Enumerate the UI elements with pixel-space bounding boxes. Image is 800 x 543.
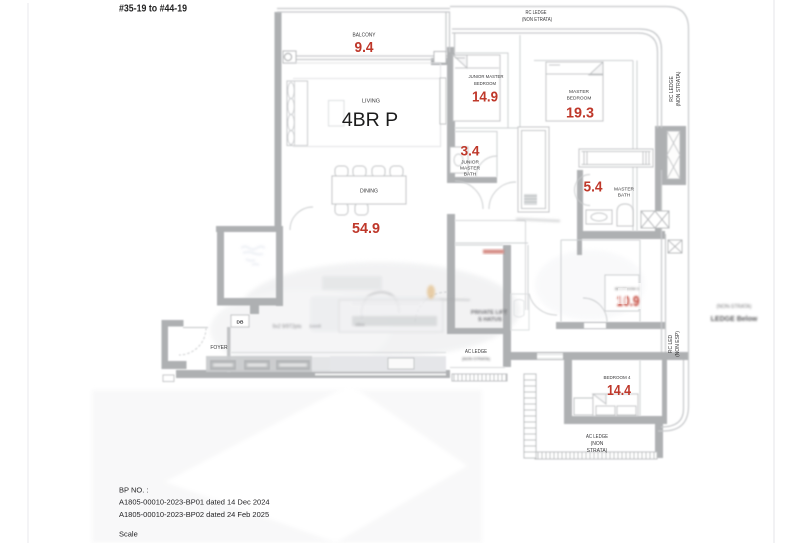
svg-text:STRATA): STRATA) bbox=[587, 448, 608, 454]
svg-text:14.4: 14.4 bbox=[607, 383, 631, 399]
svg-text:54.9: 54.9 bbox=[352, 220, 380, 237]
svg-text:BATH: BATH bbox=[464, 172, 477, 178]
svg-text:AC LEDGE: AC LEDGE bbox=[465, 349, 488, 355]
svg-text:BEDROOM: BEDROOM bbox=[474, 81, 496, 87]
svg-text:9.4: 9.4 bbox=[355, 40, 374, 56]
svg-text:RC LEDGE: RC LEDGE bbox=[669, 76, 675, 102]
svg-text:5.4: 5.4 bbox=[584, 180, 603, 196]
svg-text:BEDROOM 4: BEDROOM 4 bbox=[604, 375, 631, 381]
svg-text:MASTER: MASTER bbox=[569, 89, 590, 95]
svg-text:(NON-STRATA): (NON-STRATA) bbox=[716, 304, 751, 310]
svg-text:JUNIOR: JUNIOR bbox=[461, 160, 479, 166]
svg-text:(NON ESP): (NON ESP) bbox=[675, 331, 681, 357]
svg-text:LIVING: LIVING bbox=[362, 99, 380, 105]
svg-text:FOYER: FOYER bbox=[210, 345, 228, 351]
svg-text:(NON STRATA): (NON STRATA) bbox=[462, 356, 491, 361]
svg-text:LEDGE Below: LEDGE Below bbox=[711, 316, 758, 323]
svg-text:BP NO. :: BP NO. : bbox=[119, 486, 148, 495]
svg-text:3.4: 3.4 bbox=[461, 143, 480, 159]
svg-text:DINING: DINING bbox=[360, 189, 378, 195]
svg-text:4BR P: 4BR P bbox=[342, 109, 398, 131]
svg-text:RC LED: RC LED bbox=[668, 334, 674, 353]
svg-text:A1805-00010-2023-BP02 dated 24: A1805-00010-2023-BP02 dated 24 Feb 2025 bbox=[119, 510, 269, 519]
svg-text:A1805-00010-2023-BP01 dated 14: A1805-00010-2023-BP01 dated 14 Dec 2024 bbox=[119, 498, 270, 507]
svg-text:14.9: 14.9 bbox=[472, 89, 498, 106]
svg-text:BATH: BATH bbox=[618, 193, 631, 199]
svg-text:x9xx: x9xx bbox=[355, 322, 365, 327]
svg-text:RC LEDGE: RC LEDGE bbox=[526, 10, 548, 16]
svg-text:(NON: (NON bbox=[591, 441, 604, 447]
svg-text:BEDROOM: BEDROOM bbox=[567, 96, 592, 102]
svg-text:Scale: Scale bbox=[119, 530, 138, 539]
svg-text:19.3: 19.3 bbox=[566, 105, 594, 122]
svg-text:#35-19 to #44-19: #35-19 to #44-19 bbox=[119, 3, 187, 15]
svg-text:DB: DB bbox=[237, 320, 244, 326]
svg-text:9x2 9/9T2pts: 9x2 9/9T2pts bbox=[273, 324, 302, 330]
svg-text:BALCONY: BALCONY bbox=[353, 33, 377, 39]
svg-text:AC LEDGE: AC LEDGE bbox=[586, 434, 609, 440]
svg-text:S HATUS: S HATUS bbox=[478, 317, 502, 323]
svg-text:(NON STRATA): (NON STRATA) bbox=[676, 71, 682, 106]
svg-text:JUNIOR MASTER: JUNIOR MASTER bbox=[469, 74, 504, 80]
svg-text:(NON ETRATA): (NON ETRATA) bbox=[522, 17, 552, 23]
svg-text:MASTER: MASTER bbox=[614, 187, 635, 193]
svg-text:1xxx9: 1xxx9 bbox=[309, 324, 321, 329]
svg-text:MASTER: MASTER bbox=[460, 166, 481, 172]
svg-text:PRIVATE LIFT: PRIVATE LIFT bbox=[471, 310, 508, 316]
